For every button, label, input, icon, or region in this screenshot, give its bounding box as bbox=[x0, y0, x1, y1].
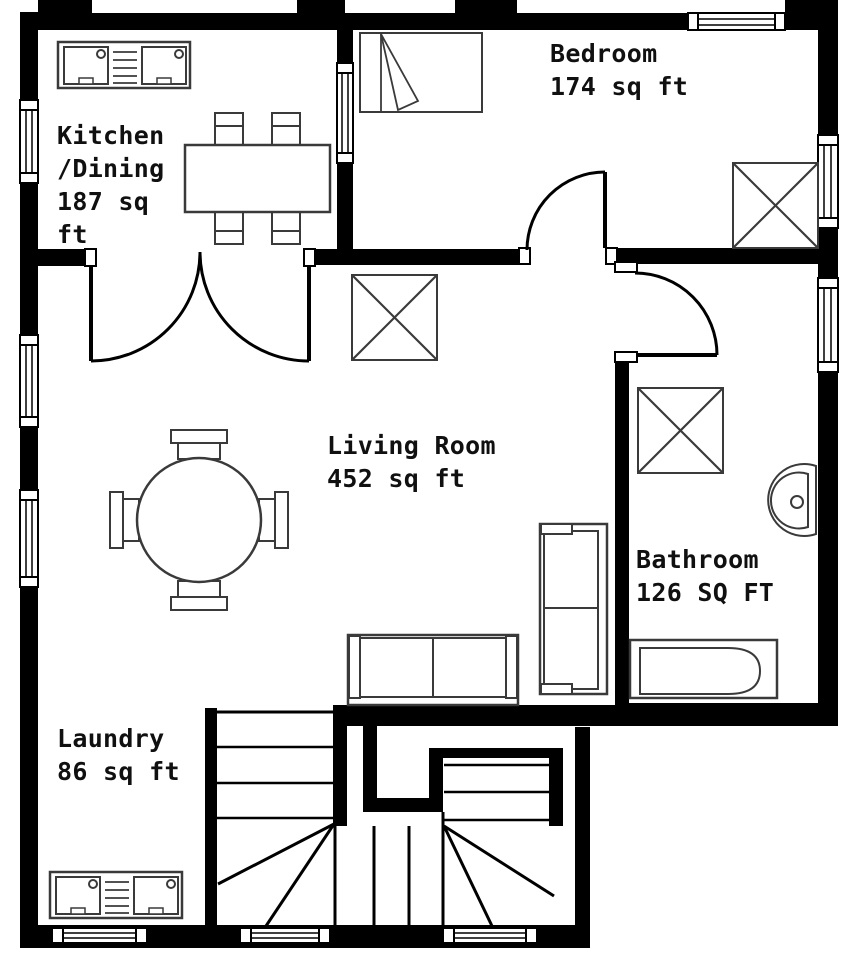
window-stair-south-a bbox=[240, 928, 330, 943]
dining-set bbox=[185, 113, 330, 244]
bathroom-sink bbox=[768, 464, 816, 536]
door-bathroom bbox=[635, 273, 717, 355]
dining-chair bbox=[215, 113, 243, 145]
laundry-sink bbox=[50, 872, 182, 918]
room-label-bedroom: Bedroom 174 sq ft bbox=[550, 37, 688, 103]
wall-east bbox=[818, 228, 838, 278]
dining-table bbox=[185, 145, 330, 212]
dining-chair bbox=[272, 113, 300, 145]
dining-chair bbox=[215, 212, 243, 244]
room-label-kitchen-dining: Kitchen /Dining 187 sq ft bbox=[57, 119, 164, 251]
door-jamb bbox=[615, 262, 637, 272]
wall-kitchen-bedroom-divider bbox=[337, 163, 353, 250]
window-kitchen-west bbox=[20, 100, 38, 183]
chair bbox=[275, 492, 288, 548]
double-door-kitchen-living bbox=[91, 252, 309, 361]
wall-living-south bbox=[333, 705, 620, 726]
wall-west bbox=[20, 183, 38, 250]
door-jamb bbox=[85, 249, 96, 266]
door-jamb bbox=[615, 352, 637, 362]
xbox-living bbox=[352, 275, 437, 360]
wall-top-tab bbox=[455, 0, 517, 13]
wall-west bbox=[20, 587, 38, 945]
round-table-set bbox=[110, 430, 288, 610]
wall-south-of-kitchen-bedroom bbox=[310, 249, 530, 265]
chair bbox=[110, 492, 123, 548]
sofa-horizontal bbox=[348, 635, 518, 705]
round-table bbox=[137, 458, 261, 582]
wall-west bbox=[20, 12, 38, 100]
door-jamb bbox=[519, 248, 530, 264]
chair bbox=[171, 430, 227, 443]
xbox-bedroom bbox=[733, 163, 818, 248]
door-jamb bbox=[304, 249, 315, 266]
wall-east bbox=[818, 372, 838, 726]
wall-west bbox=[20, 427, 38, 490]
stair-core-wall bbox=[549, 758, 563, 826]
bathtub bbox=[630, 640, 777, 698]
window-divider-interior bbox=[337, 63, 353, 163]
door-bedroom bbox=[527, 172, 605, 250]
wall-top-tab bbox=[38, 0, 92, 13]
window-living-west-b bbox=[20, 490, 38, 587]
dining-chair bbox=[272, 212, 300, 244]
wall-bathroom-south bbox=[620, 703, 838, 726]
room-label-laundry: Laundry 86 sq ft bbox=[57, 722, 180, 788]
stair-core-wall bbox=[429, 748, 563, 758]
window-stair-south-b bbox=[443, 928, 537, 943]
staircase bbox=[217, 712, 554, 926]
wall-top-tab bbox=[297, 0, 345, 13]
wall-north bbox=[38, 13, 688, 30]
window-living-west-a bbox=[20, 335, 38, 427]
window-bedroom-east bbox=[818, 135, 838, 228]
room-label-living-room: Living Room 452 sq ft bbox=[327, 429, 496, 495]
window-bedroom-north bbox=[688, 13, 785, 30]
floor-plan: Kitchen /Dining 187 sq ft Bedroom 174 sq… bbox=[0, 0, 850, 957]
stair-core-wall bbox=[333, 726, 347, 826]
sofa-vertical bbox=[540, 524, 607, 694]
room-label-bathroom: Bathroom 126 SQ FT bbox=[636, 543, 774, 609]
window-bathroom-east bbox=[818, 278, 838, 372]
wall-kitchen-bedroom-divider bbox=[337, 30, 353, 63]
wall-stair-west bbox=[205, 708, 217, 945]
wall-stair-east bbox=[575, 727, 590, 945]
bed bbox=[360, 33, 482, 112]
wall-east bbox=[818, 13, 838, 135]
wall-kitchen-south bbox=[20, 249, 87, 266]
wall-bedroom-south bbox=[612, 248, 838, 264]
xbox-bathroom bbox=[638, 388, 723, 473]
kitchen-sink bbox=[58, 42, 190, 88]
chair bbox=[178, 443, 220, 459]
chair bbox=[178, 581, 220, 597]
window-laundry-south bbox=[52, 928, 147, 943]
wall-bathroom-west bbox=[615, 362, 629, 706]
stair-winder bbox=[266, 824, 334, 926]
stair-winder bbox=[218, 824, 334, 884]
chair bbox=[171, 597, 227, 610]
